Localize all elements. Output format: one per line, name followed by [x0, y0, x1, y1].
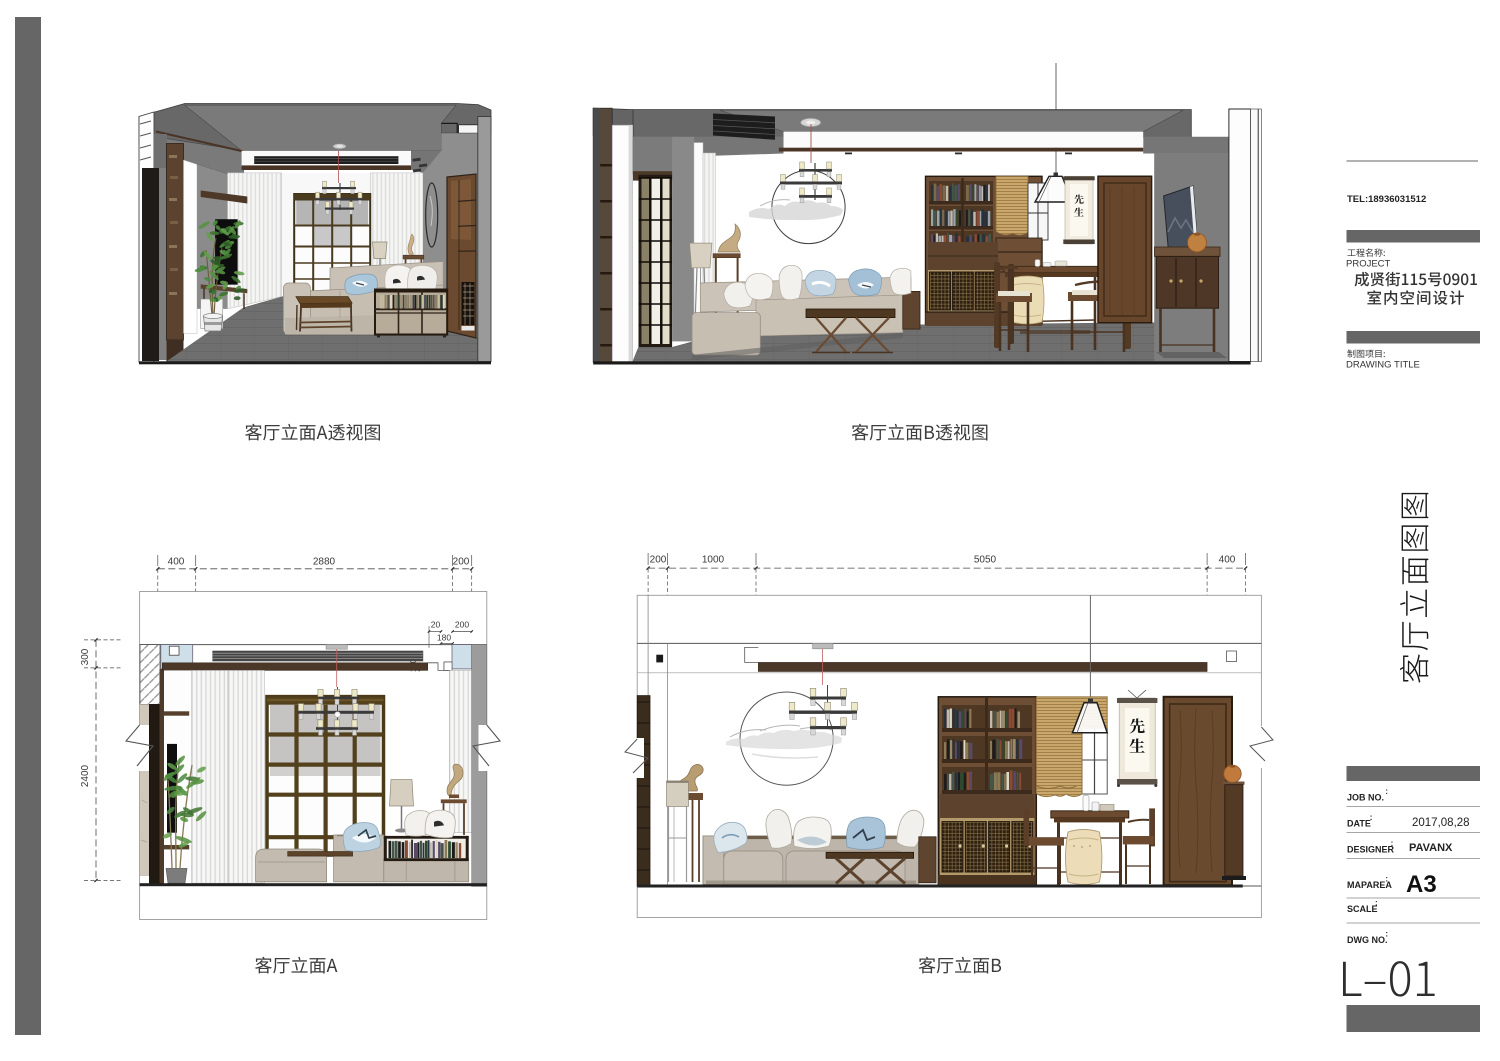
svg-text::: :	[1370, 813, 1373, 822]
svg-text:DATE: DATE	[1347, 819, 1371, 829]
svg-text::: :	[1385, 875, 1388, 884]
svg-text::: :	[1385, 930, 1388, 939]
svg-text:400: 400	[168, 557, 185, 568]
svg-text::: :	[1375, 899, 1378, 908]
svg-text:20: 20	[431, 620, 441, 630]
svg-text:DESIGNER: DESIGNER	[1347, 845, 1395, 855]
svg-text:200: 200	[455, 620, 469, 630]
svg-text:180: 180	[437, 633, 451, 643]
svg-text:TEL:18936031512: TEL:18936031512	[1347, 194, 1426, 205]
svg-text:A3: A3	[1406, 871, 1437, 898]
svg-text:SCALE: SCALE	[1347, 904, 1378, 914]
svg-text:DRAWING TITLE: DRAWING TITLE	[1346, 360, 1420, 371]
svg-text:JOB NO.: JOB NO.	[1347, 793, 1384, 803]
svg-text:PROJECT: PROJECT	[1346, 259, 1391, 270]
svg-text:2017,08,28: 2017,08,28	[1412, 817, 1470, 829]
svg-text:2400: 2400	[80, 764, 91, 787]
svg-text:400: 400	[1219, 555, 1236, 566]
svg-text:1000: 1000	[702, 555, 725, 566]
svg-text:5050: 5050	[974, 555, 997, 566]
svg-text::: :	[1385, 787, 1388, 796]
svg-text:300: 300	[80, 648, 91, 665]
svg-text:DWG NO.: DWG NO.	[1347, 935, 1388, 945]
svg-text:200: 200	[453, 557, 470, 568]
svg-text::: :	[1391, 839, 1394, 848]
svg-text:PAVANX: PAVANX	[1409, 842, 1453, 854]
svg-text:200: 200	[650, 555, 667, 566]
svg-text:2880: 2880	[313, 557, 336, 568]
